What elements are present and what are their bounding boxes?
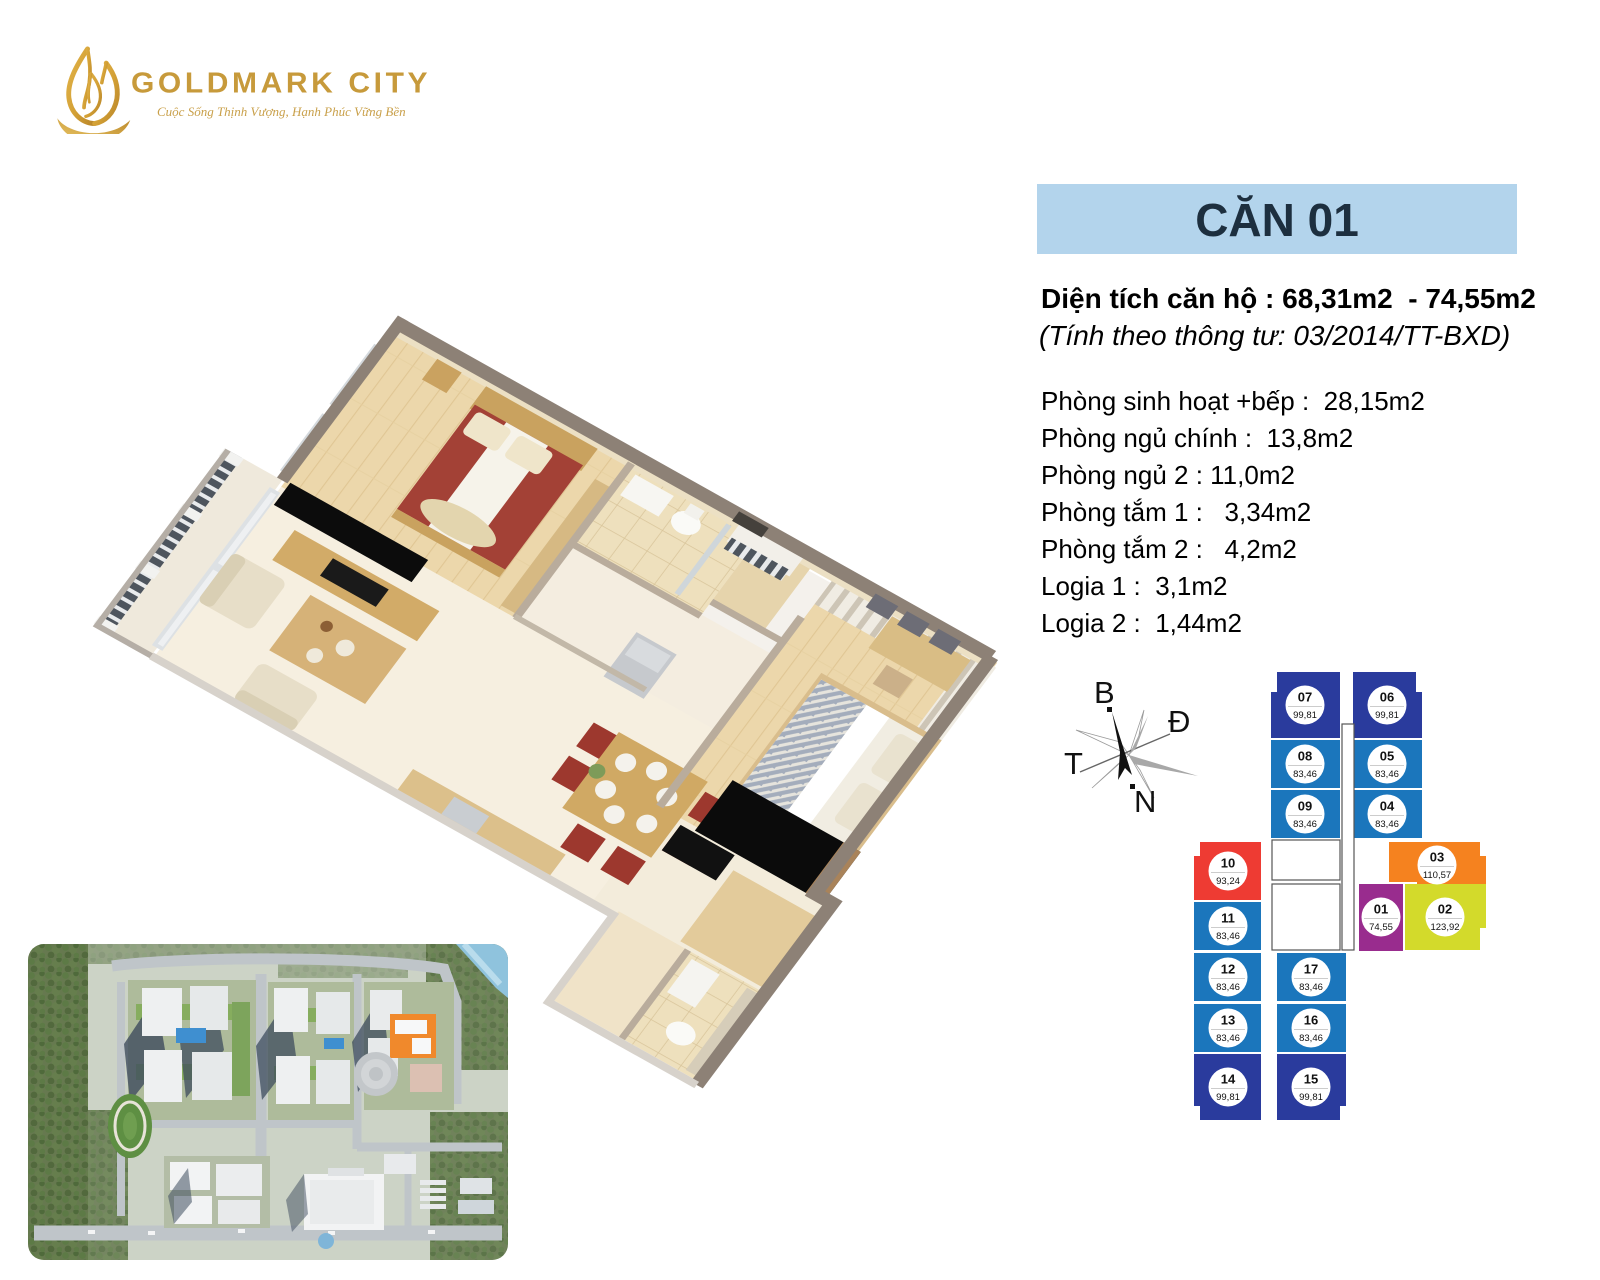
svg-text:99,81: 99,81 [1293, 710, 1317, 721]
svg-text:83,46: 83,46 [1299, 982, 1323, 993]
svg-text:06: 06 [1380, 690, 1394, 705]
svg-text:83,46: 83,46 [1293, 819, 1317, 830]
svg-text:99,81: 99,81 [1299, 1092, 1323, 1103]
svg-text:B: B [1094, 678, 1115, 710]
svg-text:17: 17 [1304, 962, 1318, 977]
svg-text:93,24: 93,24 [1216, 876, 1240, 887]
svg-text:14: 14 [1221, 1072, 1236, 1087]
svg-text:11: 11 [1221, 911, 1235, 926]
svg-text:15: 15 [1304, 1072, 1318, 1087]
svg-text:05: 05 [1380, 749, 1394, 764]
svg-text:83,46: 83,46 [1216, 931, 1240, 942]
svg-text:13: 13 [1221, 1013, 1235, 1028]
svg-text:83,46: 83,46 [1375, 819, 1399, 830]
svg-text:04: 04 [1380, 799, 1395, 814]
svg-text:99,81: 99,81 [1216, 1092, 1240, 1103]
svg-text:01: 01 [1374, 902, 1388, 917]
svg-text:09: 09 [1298, 799, 1312, 814]
svg-text:07: 07 [1298, 690, 1312, 705]
svg-text:03: 03 [1430, 850, 1444, 865]
svg-text:83,46: 83,46 [1216, 982, 1240, 993]
svg-text:12: 12 [1221, 962, 1235, 977]
svg-text:16: 16 [1304, 1013, 1318, 1028]
svg-text:123,92: 123,92 [1430, 922, 1459, 933]
svg-text:83,46: 83,46 [1293, 769, 1317, 780]
svg-text:99,81: 99,81 [1375, 710, 1399, 721]
svg-text:10: 10 [1221, 856, 1235, 871]
svg-text:02: 02 [1438, 902, 1452, 917]
svg-text:T: T [1064, 746, 1083, 781]
svg-text:08: 08 [1298, 749, 1312, 764]
svg-text:83,46: 83,46 [1375, 769, 1399, 780]
svg-text:110,57: 110,57 [1423, 870, 1451, 881]
svg-text:83,46: 83,46 [1216, 1033, 1240, 1044]
svg-text:N: N [1134, 784, 1156, 818]
svg-text:74,55: 74,55 [1369, 922, 1393, 933]
svg-text:83,46: 83,46 [1299, 1033, 1323, 1044]
